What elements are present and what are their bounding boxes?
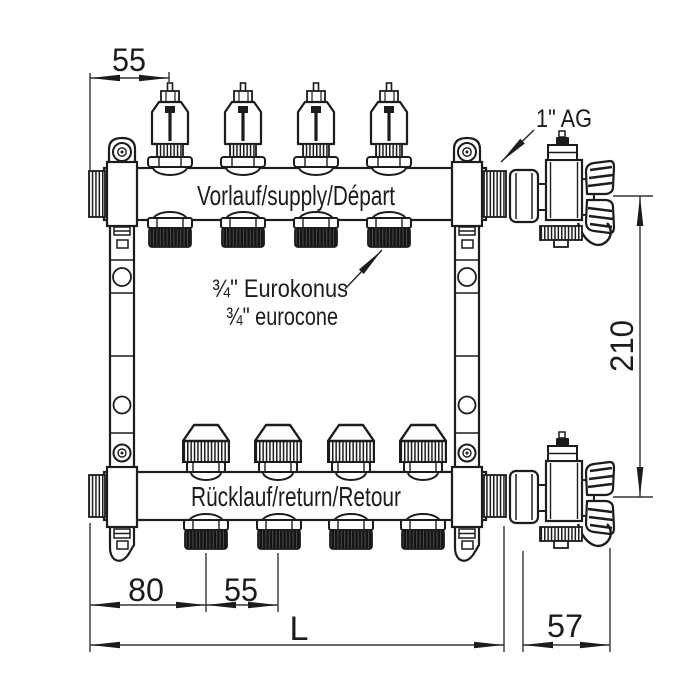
eurokonus-label-line1: ¾" Eurokonus [212, 275, 348, 303]
return-outlet-1 [184, 514, 228, 549]
return-outlet-4 [401, 514, 445, 549]
thread-leader [501, 130, 534, 162]
supply-outlet-2 [221, 212, 265, 247]
thermostatic-valves [148, 83, 411, 175]
dim-height: 210 [604, 320, 640, 372]
dim-bottom-spacing: 55 [224, 572, 258, 608]
supply-left-thread [89, 171, 105, 217]
dim-overall-length: L [290, 610, 309, 648]
eurokonus-label-line2: ¾" eurocone [226, 303, 338, 331]
thermostatic-valve-2 [221, 83, 265, 175]
return-ball-valve [510, 432, 614, 548]
supply-outlet-4 [367, 212, 411, 247]
lockshield-cap-4 [400, 425, 446, 480]
supply-ball-valve [510, 131, 614, 247]
thermostatic-valve-4 [367, 83, 411, 175]
right-mounting-bracket [452, 138, 482, 561]
eurokonus-leader [345, 250, 382, 289]
return-right-thread [484, 475, 506, 517]
thermostatic-valve-3 [294, 83, 338, 175]
lockshield-cap-1 [183, 425, 229, 480]
thermostatic-valve-1 [148, 83, 192, 175]
dim-top-spacing: 55 [112, 42, 146, 78]
dim-end-offset: 80 [128, 572, 164, 608]
thread-callout-label: 1" AG [536, 105, 592, 133]
supply-right-thread-1in-ag [484, 171, 506, 217]
supply-outlet-3 [294, 212, 338, 247]
return-left-thread [89, 475, 105, 517]
lockshield-cap-2 [255, 425, 301, 480]
return-outlet-2 [257, 514, 301, 549]
left-mounting-bracket [107, 138, 137, 561]
supply-outlet-1 [148, 212, 192, 247]
return-bar-label: Rücklauf/return/Retour [191, 481, 401, 512]
technical-drawing-page: Vorlauf/supply/Départ Rücklauf/return/Re… [0, 0, 700, 700]
return-outlet-3 [329, 514, 373, 549]
manifold-technical-drawing: Vorlauf/supply/Départ Rücklauf/return/Re… [0, 0, 700, 700]
lockshield-cap-3 [328, 425, 374, 480]
supply-bar-label: Vorlauf/supply/Départ [197, 180, 395, 211]
dim-valve-width: 57 [547, 608, 583, 644]
